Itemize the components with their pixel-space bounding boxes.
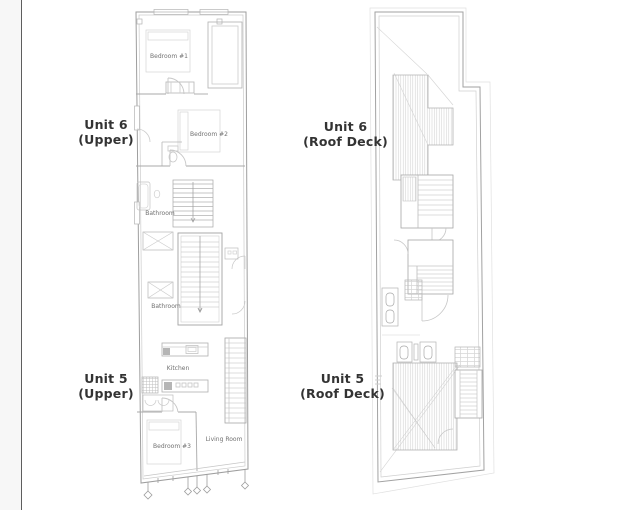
water-heater — [225, 248, 238, 259]
unit-name: Unit 6 — [288, 120, 403, 135]
page-margin-strip — [0, 0, 21, 510]
hall-doors — [232, 256, 245, 314]
room-label-bathroom-lower: Bathroom — [151, 303, 181, 310]
bedroom3-furniture — [147, 420, 181, 464]
unit-level: (Upper) — [56, 133, 156, 148]
unit-5-roof-deck-label: Unit 5 (Roof Deck) — [285, 372, 400, 401]
floor-plan-sheet: Bedroom #1 Bedroom #2 Bathroom Bathroom … — [0, 0, 640, 510]
roof-stair-bulkhead-2 — [394, 240, 453, 321]
interior-walls-top — [136, 78, 208, 94]
stair-upper-run — [173, 180, 213, 227]
roof-deck-plan-drawing — [366, 5, 511, 505]
page-edge-line — [21, 0, 22, 510]
shaft-box-1 — [143, 232, 173, 250]
window-symbols — [135, 10, 229, 225]
unit-name: Unit 5 — [56, 372, 156, 387]
unit-name: Unit 6 — [56, 118, 156, 133]
unit-5-upper-label: Unit 5 (Upper) — [56, 372, 156, 401]
roof-stair-bulkhead-1 — [401, 175, 453, 242]
unit-level: (Upper) — [56, 387, 156, 402]
paver-pad-upper — [405, 280, 422, 300]
room-label-bedroom-1: Bedroom #1 — [150, 53, 188, 60]
unit-level: (Roof Deck) — [288, 135, 403, 150]
room-label-bathroom-upper: Bathroom — [145, 210, 175, 217]
bedroom1-furniture — [146, 30, 190, 72]
skylight-panel-left — [382, 288, 398, 326]
room-label-living-room: Living Room — [206, 436, 243, 443]
kitchen-walls — [137, 398, 197, 471]
unit-name: Unit 5 — [285, 372, 400, 387]
room-label-kitchen: Kitchen — [167, 365, 190, 372]
shaft-box-2 — [148, 282, 173, 298]
paver-pad-right — [455, 347, 480, 367]
interior-wall-bed2 — [136, 150, 245, 166]
room-label-bedroom-3: Bedroom #3 — [153, 443, 191, 450]
skylight-boxes-middle — [397, 342, 436, 362]
room-label-bedroom-2: Bedroom #2 — [190, 131, 228, 138]
unit-6-roof-deck-label: Unit 6 (Roof Deck) — [288, 120, 403, 149]
upper-floor-plan-drawing: Bedroom #1 Bedroom #2 Bathroom Bathroom … — [128, 6, 258, 508]
closet — [208, 22, 242, 88]
living-room-stair — [225, 338, 246, 423]
unit-6-upper-label: Unit 6 (Upper) — [56, 118, 156, 147]
unit-level: (Roof Deck) — [285, 387, 400, 402]
central-stairwell — [178, 233, 222, 325]
